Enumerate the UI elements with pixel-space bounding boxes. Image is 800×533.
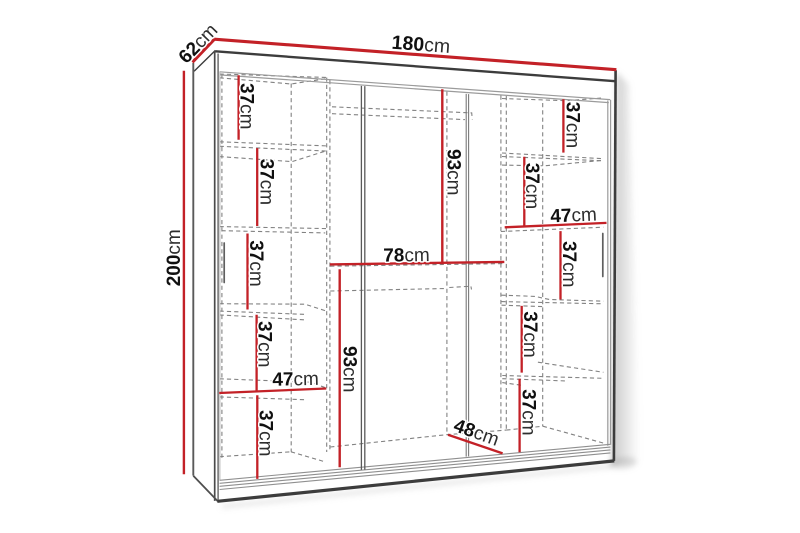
- svg-text:93cm: 93cm: [443, 149, 464, 195]
- svg-text:93cm: 93cm: [338, 346, 359, 392]
- svg-text:200cm: 200cm: [164, 229, 185, 286]
- svg-text:37cm: 37cm: [562, 102, 583, 148]
- svg-text:37cm: 37cm: [519, 311, 540, 357]
- svg-text:37cm: 37cm: [517, 389, 538, 435]
- svg-text:37cm: 37cm: [236, 83, 257, 129]
- svg-text:37cm: 37cm: [245, 240, 266, 286]
- svg-text:78cm: 78cm: [383, 245, 430, 267]
- svg-text:47cm: 47cm: [272, 369, 319, 391]
- svg-text:37cm: 37cm: [255, 159, 276, 205]
- svg-text:47cm: 47cm: [550, 204, 597, 227]
- svg-text:37cm: 37cm: [521, 163, 542, 209]
- svg-text:37cm: 37cm: [255, 410, 276, 456]
- svg-text:37cm: 37cm: [558, 241, 579, 287]
- svg-text:37cm: 37cm: [254, 321, 275, 367]
- svg-text:180cm: 180cm: [391, 32, 451, 58]
